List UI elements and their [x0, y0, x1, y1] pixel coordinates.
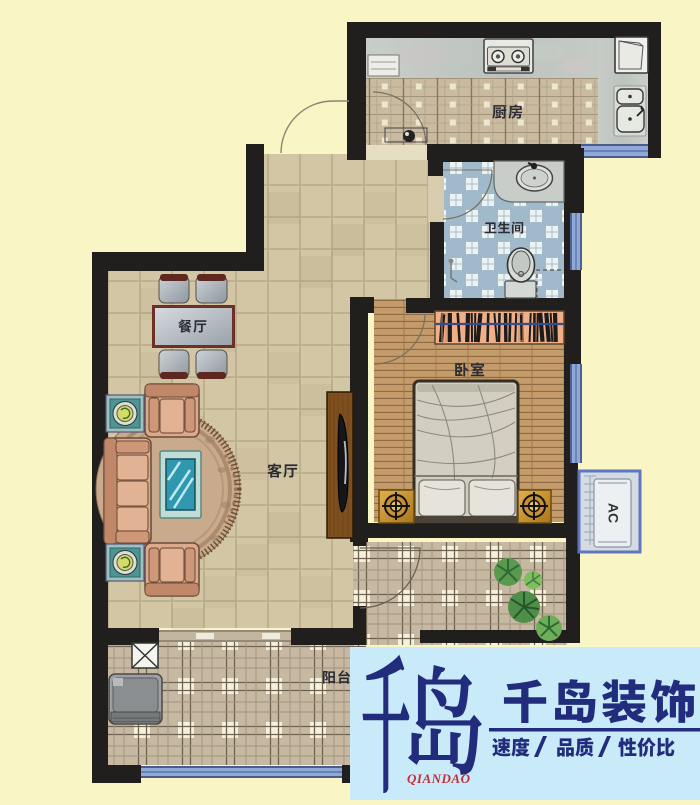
- svg-text:QIANDAO: QIANDAO: [407, 771, 471, 786]
- svg-text:AC: AC: [605, 503, 621, 523]
